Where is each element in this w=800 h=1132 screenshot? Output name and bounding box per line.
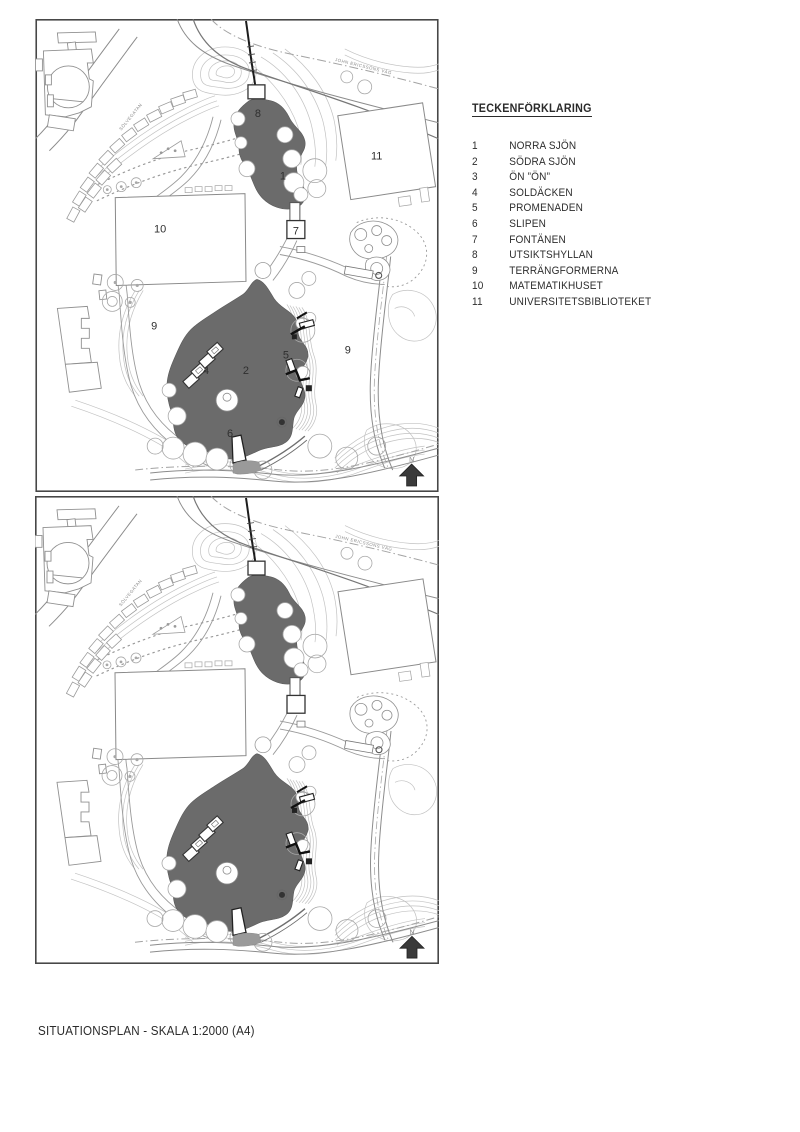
legend-items: 1NORRA SJÖN 2SÖDRA SJÖN 3ÖN ”ÖN” 4SOLDÄC… xyxy=(472,139,651,311)
legend-item: 4SOLDÄCKEN xyxy=(472,186,651,202)
legend-item: 2SÖDRA SJÖN xyxy=(472,155,651,171)
legend-item-label: SÖDRA SJÖN xyxy=(509,155,576,171)
label-terrang-east: 9 xyxy=(345,344,351,356)
legend-item-label: PROMENADEN xyxy=(509,201,583,217)
label-fontanen: 7 xyxy=(293,226,299,238)
legend-item-label: ÖN ”ÖN” xyxy=(509,170,550,186)
drawing-caption: SITUATIONSPLAN - SKALA 1:2000 (A4) xyxy=(38,1024,255,1038)
legend-item: 3ÖN ”ÖN” xyxy=(472,170,651,186)
legend-item-label: FONTÄNEN xyxy=(509,233,566,249)
label-norra-sjon: 1 xyxy=(280,171,286,183)
legend-item-number: 2 xyxy=(472,155,509,171)
legend-item-label: UTSIKTSHYLLAN xyxy=(509,248,593,264)
legend-item-number: 5 xyxy=(472,201,509,217)
site-plan-top-svg: JOHN ERICSSONS VÄG SÖLVEGATAN N 8 1 11 1… xyxy=(35,19,439,492)
legend-item: 5PROMENADEN xyxy=(472,201,651,217)
label-utsiktshyllan: 8 xyxy=(255,108,261,120)
legend-item-label: TERRÄNGFORMERNA xyxy=(509,264,618,280)
label-sodra-sjon: 2 xyxy=(243,365,249,377)
legend-item-label: UNIVERSITETSBIBLIOTEKET xyxy=(509,295,651,311)
legend-item-number: 6 xyxy=(472,217,509,233)
site-plan-top: JOHN ERICSSONS VÄG SÖLVEGATAN N 8 1 11 1… xyxy=(35,19,439,492)
legend: TECKENFÖRKLARING 1NORRA SJÖN 2SÖDRA SJÖN… xyxy=(472,99,651,311)
legend-item: 9TERRÄNGFORMERNA xyxy=(472,264,651,280)
legend-item-number: 3 xyxy=(472,170,509,186)
legend-item: 1NORRA SJÖN xyxy=(472,139,651,155)
document-page: JOHN ERICSSONS VÄG SÖLVEGATAN N 8 1 11 1… xyxy=(0,0,800,1132)
legend-item: 7FONTÄNEN xyxy=(472,233,651,249)
label-soldacken: 4 xyxy=(203,365,209,377)
legend-item-label: SOLDÄCKEN xyxy=(509,186,573,202)
site-plan-bottom xyxy=(35,496,439,964)
legend-item-label: NORRA SJÖN xyxy=(509,139,576,155)
legend-item-label: MATEMATIKHUSET xyxy=(509,279,603,295)
label-slipen: 6 xyxy=(227,428,233,440)
legend-item: 11UNIVERSITETSBIBLIOTEKET xyxy=(472,295,651,311)
legend-title: TECKENFÖRKLARING xyxy=(472,103,592,117)
legend-item-number: 11 xyxy=(472,295,509,311)
legend-item-label: SLIPEN xyxy=(509,217,546,233)
legend-item-number: 7 xyxy=(472,233,509,249)
legend-item: 10MATEMATIKHUSET xyxy=(472,279,651,295)
label-promenaden: 5 xyxy=(283,349,289,361)
legend-item: 8UTSIKTSHYLLAN xyxy=(472,248,651,264)
legend-item: 6SLIPEN xyxy=(472,217,651,233)
site-plan-bottom-svg xyxy=(35,496,439,964)
legend-item-number: 9 xyxy=(472,264,509,280)
label-terrang-west: 9 xyxy=(151,320,157,332)
legend-item-number: 4 xyxy=(472,186,509,202)
legend-item-number: 1 xyxy=(472,139,509,155)
legend-item-number: 10 xyxy=(472,279,509,295)
label-universitetsbiblioteket: 11 xyxy=(371,151,382,163)
legend-item-number: 8 xyxy=(472,248,509,264)
label-matematikhuset: 10 xyxy=(154,224,166,236)
